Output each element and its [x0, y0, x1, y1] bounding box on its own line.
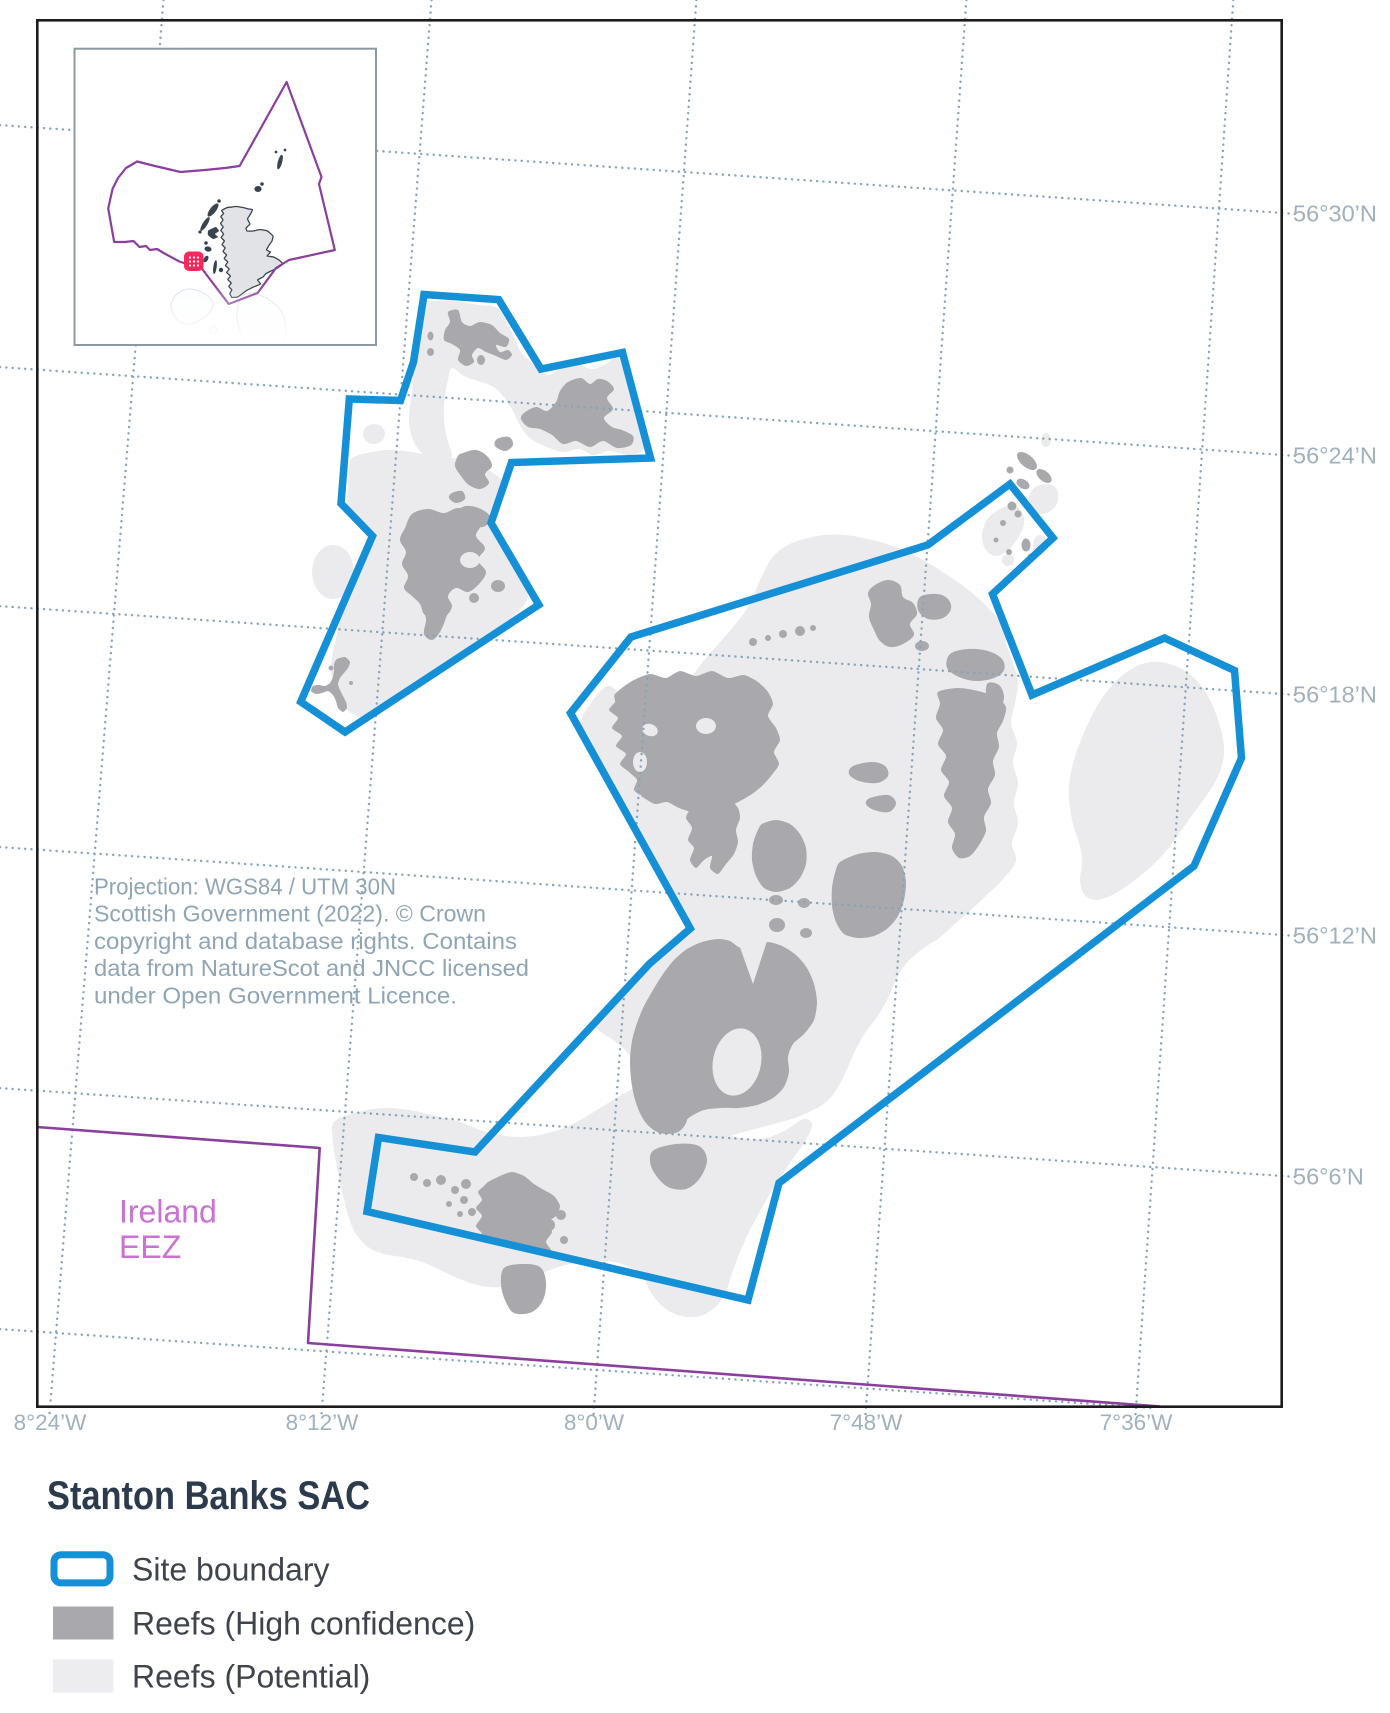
svg-text:8°24’W: 8°24’W	[14, 1410, 88, 1435]
svg-text:56°12’N: 56°12’N	[1293, 923, 1377, 949]
svg-text:EEZ: EEZ	[119, 1229, 181, 1265]
svg-text:7°48’W: 7°48’W	[830, 1410, 904, 1435]
svg-text:copyright and database rights.: copyright and database rights. Contains	[94, 928, 517, 954]
svg-text:Reefs (Potential): Reefs (Potential)	[132, 1659, 370, 1695]
svg-text:data from NatureScot and JNCC: data from NatureScot and JNCC licensed	[94, 955, 529, 981]
svg-text:under Open Government Licence.: under Open Government Licence.	[94, 982, 457, 1008]
svg-text:56°30’N: 56°30’N	[1293, 201, 1377, 227]
svg-text:Scottish Government (2022). ©: Scottish Government (2022). © Crown	[94, 901, 486, 927]
svg-text:Reefs (High confidence): Reefs (High confidence)	[132, 1606, 475, 1642]
svg-text:Projection: WGS84 / UTM 30N: Projection: WGS84 / UTM 30N	[94, 874, 396, 900]
svg-text:56°18’N: 56°18’N	[1293, 682, 1377, 708]
svg-text:Site boundary: Site boundary	[132, 1552, 329, 1588]
svg-text:Stanton Banks SAC: Stanton Banks SAC	[47, 1474, 370, 1518]
svg-text:56°24’N: 56°24’N	[1293, 443, 1377, 469]
svg-text:56°6’N: 56°6’N	[1293, 1164, 1364, 1190]
svg-text:8°0’W: 8°0’W	[564, 1410, 625, 1435]
svg-text:Ireland: Ireland	[119, 1193, 217, 1229]
svg-text:8°12’W: 8°12’W	[286, 1410, 360, 1435]
svg-text:7°36’W: 7°36’W	[1100, 1410, 1174, 1435]
